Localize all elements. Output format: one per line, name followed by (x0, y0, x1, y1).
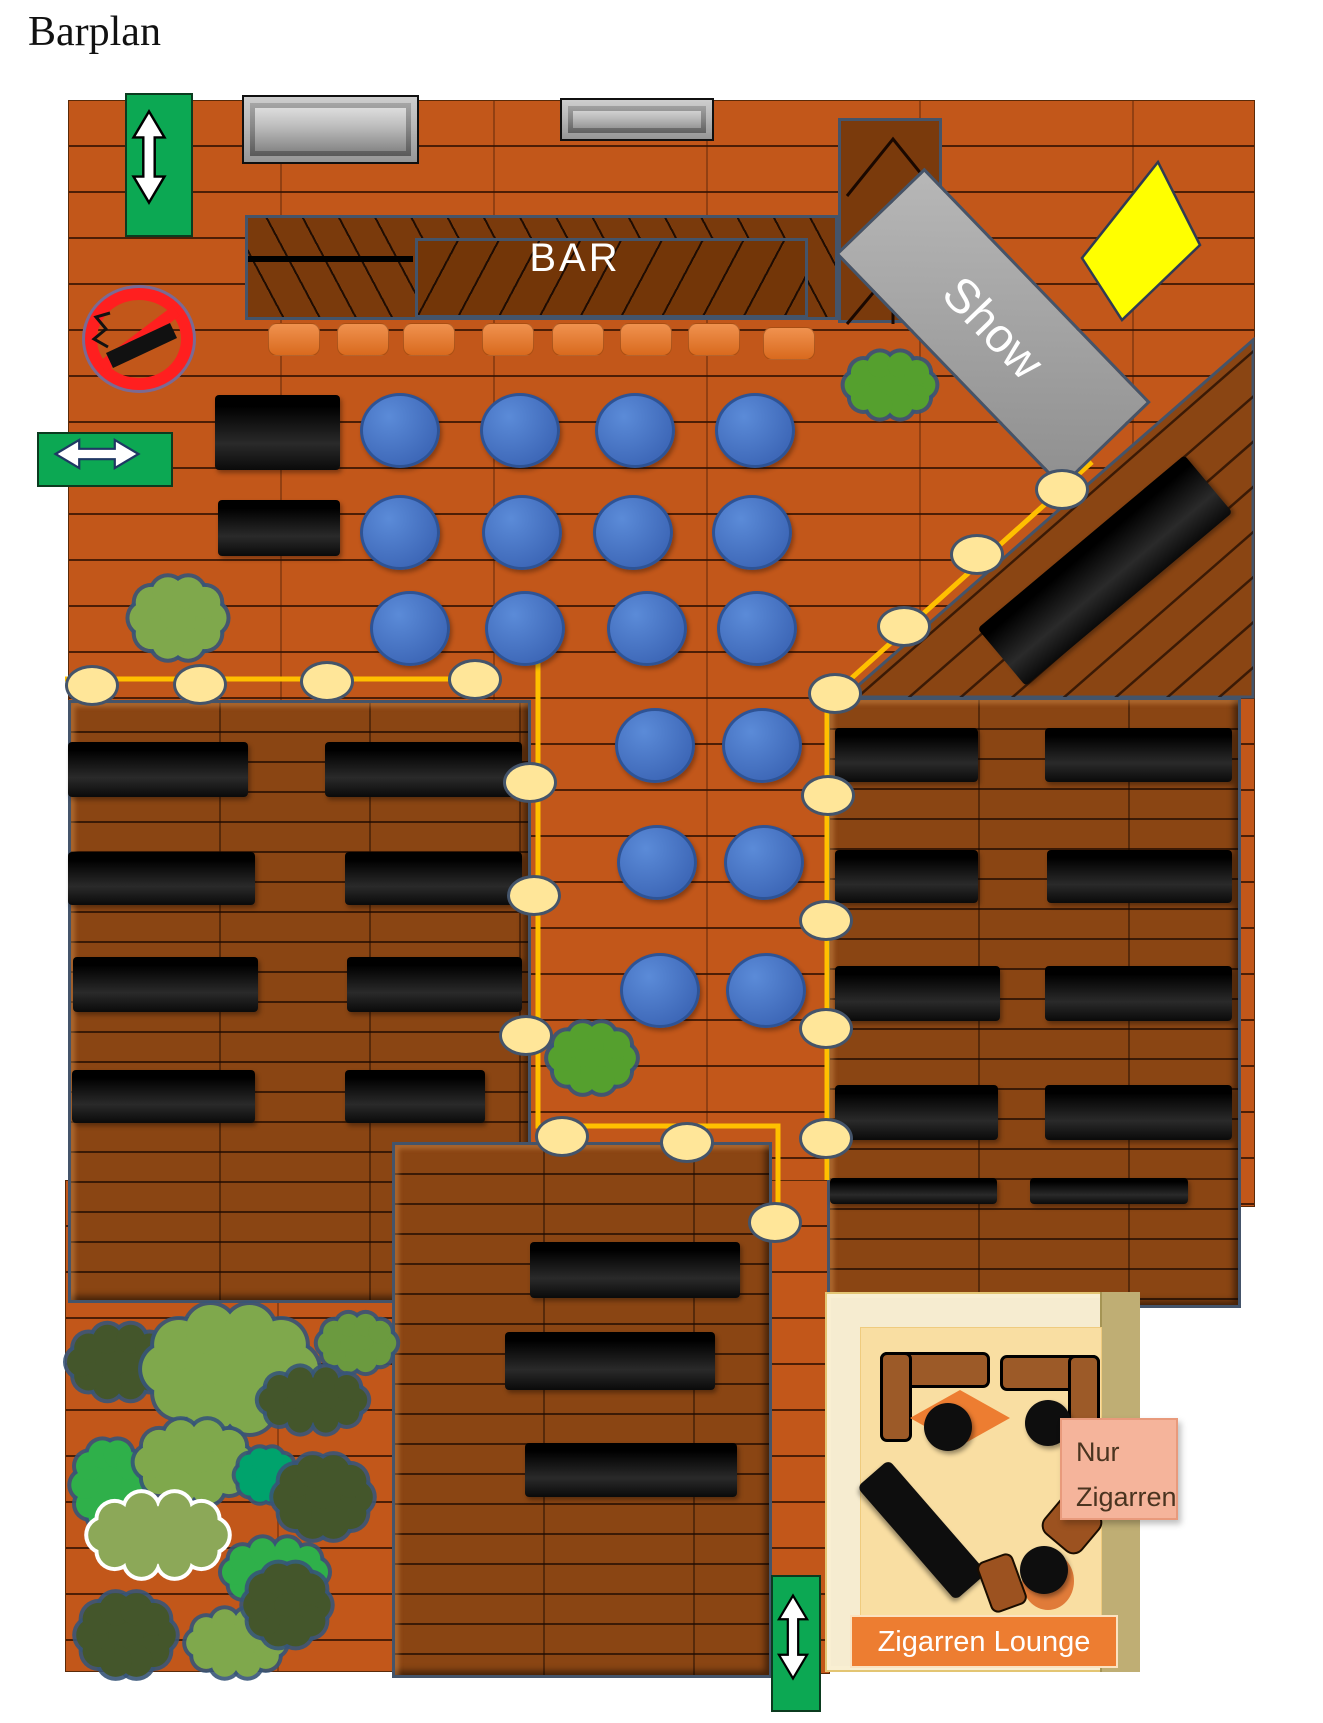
light-bulb (808, 673, 862, 714)
light-bulb (535, 1116, 589, 1157)
bar-label: BAR (475, 236, 675, 280)
light-bulb (173, 664, 227, 705)
seat (485, 591, 565, 666)
dining-table (218, 500, 340, 556)
cigar-lounge-sign: Nur Zigarren (1060, 1418, 1178, 1520)
dining-table (1045, 1085, 1232, 1140)
light-bulb (950, 534, 1004, 575)
dining-table (835, 728, 978, 782)
bar-stool (482, 323, 534, 356)
window (560, 98, 714, 141)
seat (717, 591, 797, 666)
dining-table (835, 850, 978, 903)
seat (480, 393, 560, 468)
dining-table (345, 852, 522, 905)
seat (595, 393, 675, 468)
up-down-arrow-icon (773, 1577, 813, 1697)
up-down-arrow-icon (127, 95, 171, 219)
dining-table (345, 1070, 485, 1123)
light-bulb (660, 1122, 714, 1163)
dining-table (325, 742, 522, 797)
light-bulb (65, 665, 119, 706)
light-bulb (1035, 469, 1089, 510)
bar-stool (337, 323, 389, 356)
sign-line: Nur (1076, 1430, 1176, 1475)
sofa (880, 1352, 912, 1442)
page-title: Barplan (28, 8, 161, 56)
stage-label: Show (932, 266, 1055, 391)
light-bulb (448, 659, 502, 700)
seat (607, 591, 687, 666)
bar-stool (620, 323, 672, 356)
seat (482, 495, 562, 570)
seat (712, 495, 792, 570)
seat (620, 953, 700, 1028)
cigar-lounge-banner: Zigarren Lounge (850, 1615, 1118, 1668)
exit-arrow-top (125, 93, 193, 237)
bar-stool (552, 323, 604, 356)
lounge-table (924, 1403, 972, 1451)
dining-table (505, 1332, 715, 1390)
light-bulb (877, 606, 931, 647)
seat (722, 708, 802, 783)
seat (370, 591, 450, 666)
bar-divider-line (248, 256, 413, 262)
window (242, 95, 419, 164)
dining-table (68, 742, 248, 797)
bar-stool (403, 323, 455, 356)
sign-line: Zigarren (1076, 1475, 1176, 1520)
light-bulb (799, 1008, 853, 1049)
dining-table (1045, 966, 1232, 1021)
seat (360, 495, 440, 570)
dining-table (1030, 1178, 1188, 1204)
light-bulb (801, 775, 855, 816)
exit-arrow-left (37, 432, 173, 487)
light-bulb (799, 1118, 853, 1159)
dining-table (68, 852, 255, 905)
dining-table (525, 1443, 737, 1497)
dining-table (347, 957, 522, 1012)
bar-stool (688, 323, 740, 356)
light-bulb (507, 875, 561, 916)
dining-table (835, 1085, 998, 1140)
seat (617, 825, 697, 900)
deck-middle (392, 1142, 772, 1678)
dining-table (73, 957, 258, 1012)
dining-table (530, 1242, 740, 1298)
seat (724, 825, 804, 900)
dining-table (835, 966, 1000, 1021)
light-bulb (748, 1202, 802, 1243)
seat (726, 953, 806, 1028)
dining-table (1045, 728, 1232, 782)
floor-plan: Barplan BAR Show (0, 0, 1323, 1723)
seat (615, 708, 695, 783)
dining-table (1047, 850, 1232, 903)
seat (593, 495, 673, 570)
bar-stool (268, 323, 320, 356)
seat (360, 393, 440, 468)
bar-stool (763, 327, 815, 360)
exit-arrow-bottom (771, 1575, 821, 1712)
dining-table (72, 1070, 255, 1123)
seat (715, 393, 795, 468)
light-bulb (503, 762, 557, 803)
dining-table (215, 395, 340, 470)
lounge-table (1020, 1546, 1068, 1594)
light-bulb (499, 1015, 553, 1056)
light-bulb (300, 661, 354, 702)
left-right-arrow-icon (39, 434, 155, 474)
dining-table (830, 1178, 997, 1204)
light-bulb (799, 900, 853, 941)
